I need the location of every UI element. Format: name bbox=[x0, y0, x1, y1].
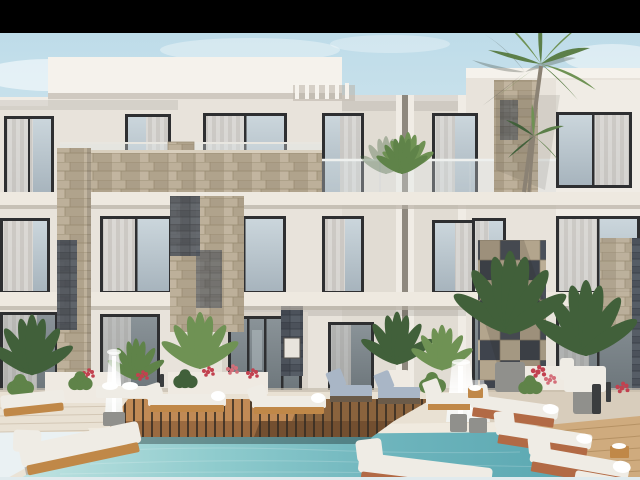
fountain-base bbox=[469, 418, 487, 433]
fountain-base bbox=[450, 414, 467, 432]
towel-roll bbox=[102, 382, 118, 390]
cloud bbox=[330, 35, 450, 53]
art-frame bbox=[284, 338, 300, 358]
stone-parapet bbox=[78, 142, 322, 197]
building bbox=[0, 57, 640, 395]
under-roof-shade bbox=[0, 100, 178, 110]
floor-slab-upper bbox=[0, 192, 640, 209]
window bbox=[432, 220, 478, 294]
window bbox=[0, 218, 50, 294]
bollard-light bbox=[592, 384, 601, 414]
right-wing-fascia bbox=[466, 68, 640, 78]
window bbox=[4, 116, 54, 196]
towel-roll bbox=[311, 393, 325, 403]
towel-roll bbox=[211, 391, 225, 401]
fountain-base bbox=[103, 412, 125, 426]
stone-mass-left bbox=[170, 196, 244, 332]
render-canvas bbox=[0, 0, 640, 480]
deck-water-shadow bbox=[104, 437, 372, 444]
window bbox=[556, 112, 632, 188]
window bbox=[322, 216, 364, 294]
window bbox=[100, 216, 172, 294]
bollard-light bbox=[160, 374, 164, 387]
stone-pilaster-and-art bbox=[281, 306, 303, 376]
towel-roll bbox=[122, 382, 138, 390]
architectural-render bbox=[0, 0, 640, 480]
pergola-slats bbox=[293, 83, 355, 101]
letterbox-bar-top bbox=[0, 0, 640, 33]
bollard-light bbox=[606, 382, 611, 402]
